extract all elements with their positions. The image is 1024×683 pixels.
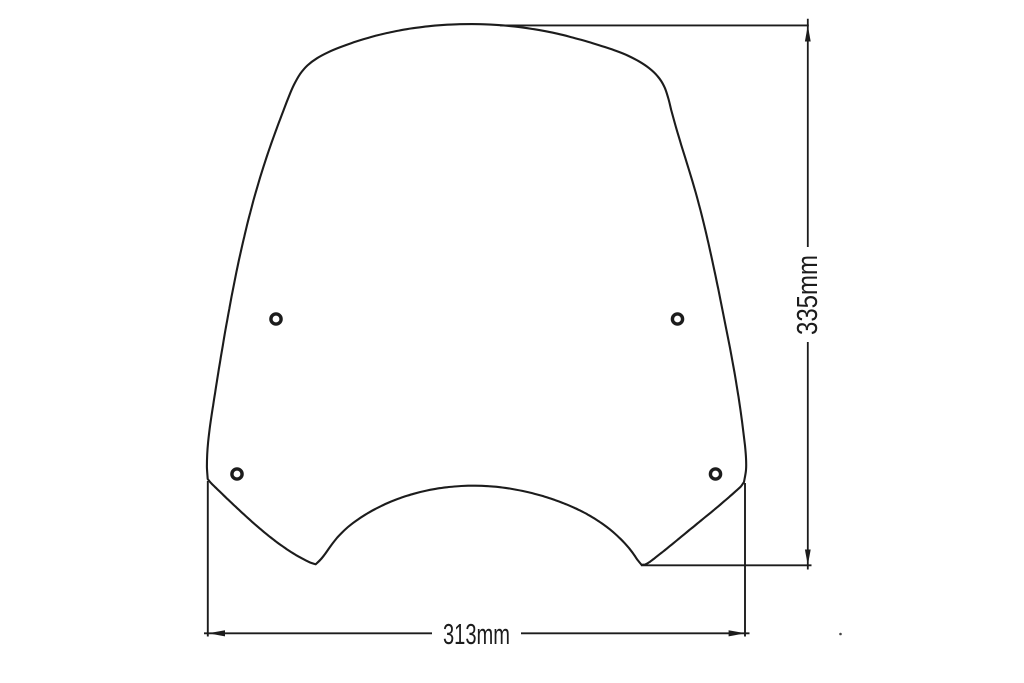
svg-text:335mm: 335mm: [792, 255, 824, 335]
svg-text:313mm: 313mm: [443, 619, 510, 651]
